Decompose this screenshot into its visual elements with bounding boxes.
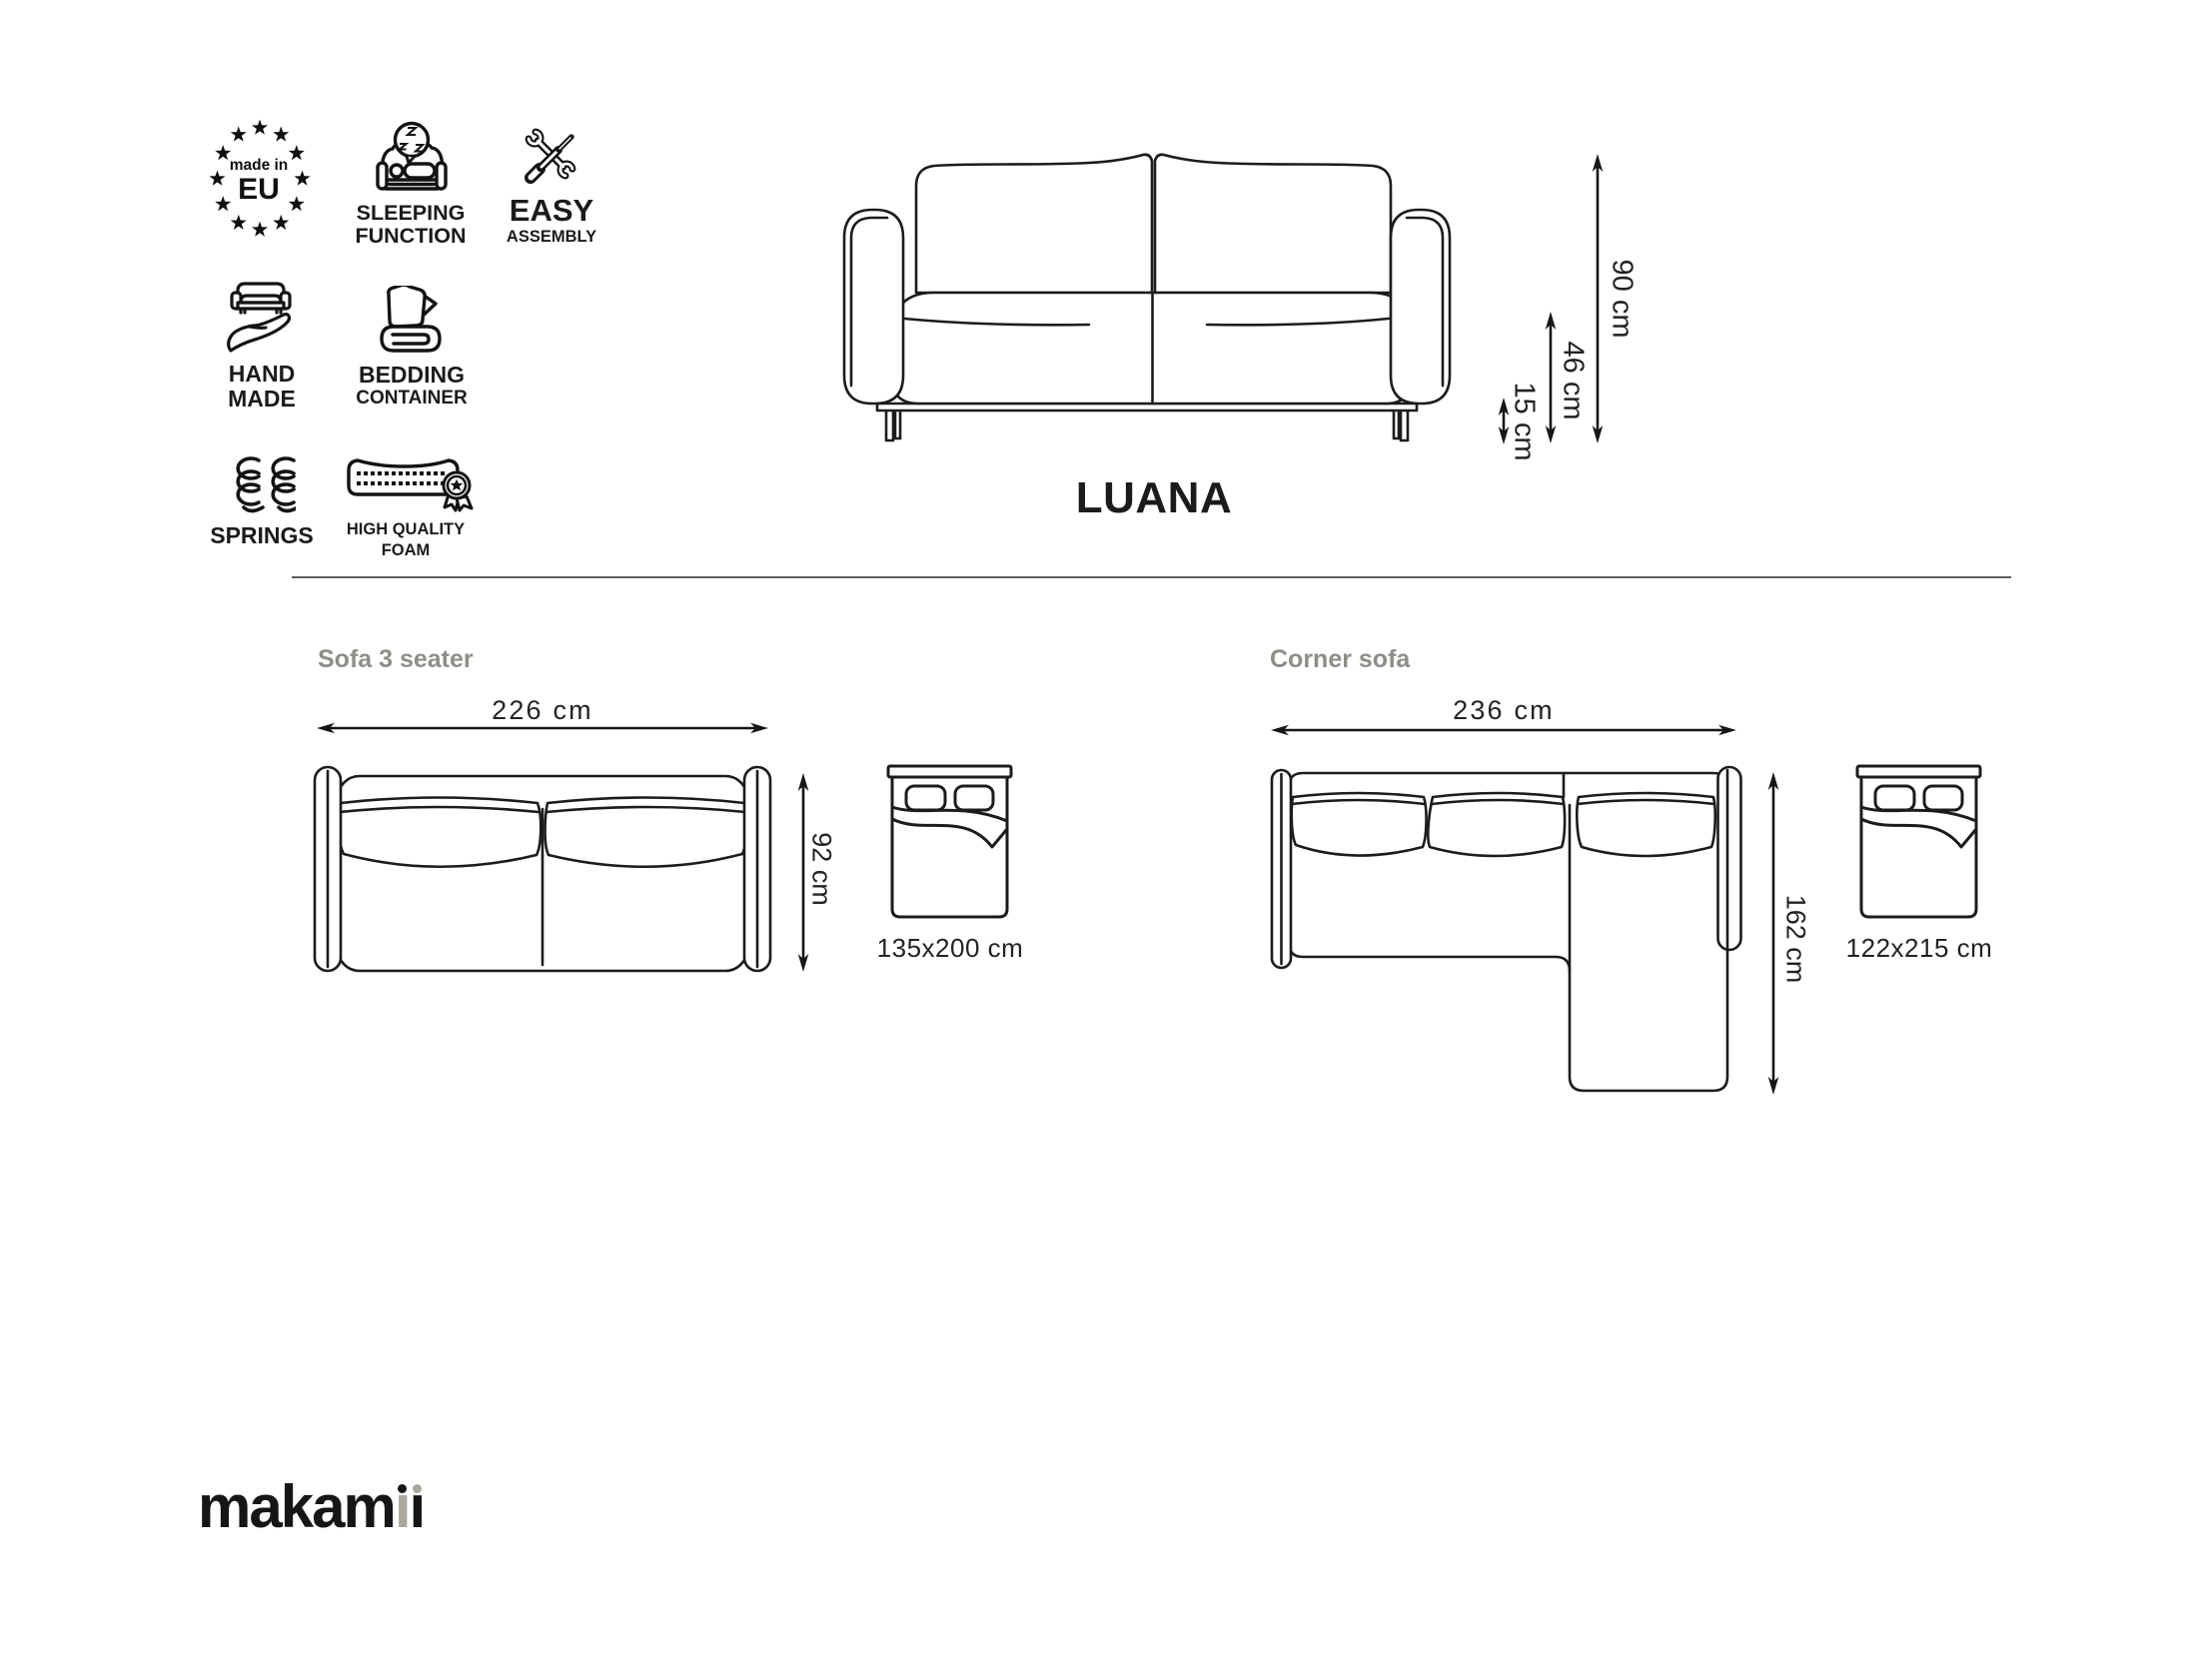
svg-text:made in: made in	[230, 157, 289, 174]
svg-text:EU: EU	[238, 173, 280, 206]
svg-text:15 cm: 15 cm	[1508, 383, 1540, 461]
svg-text:90 cm: 90 cm	[1606, 260, 1638, 339]
svg-text:46 cm: 46 cm	[1557, 342, 1589, 420]
